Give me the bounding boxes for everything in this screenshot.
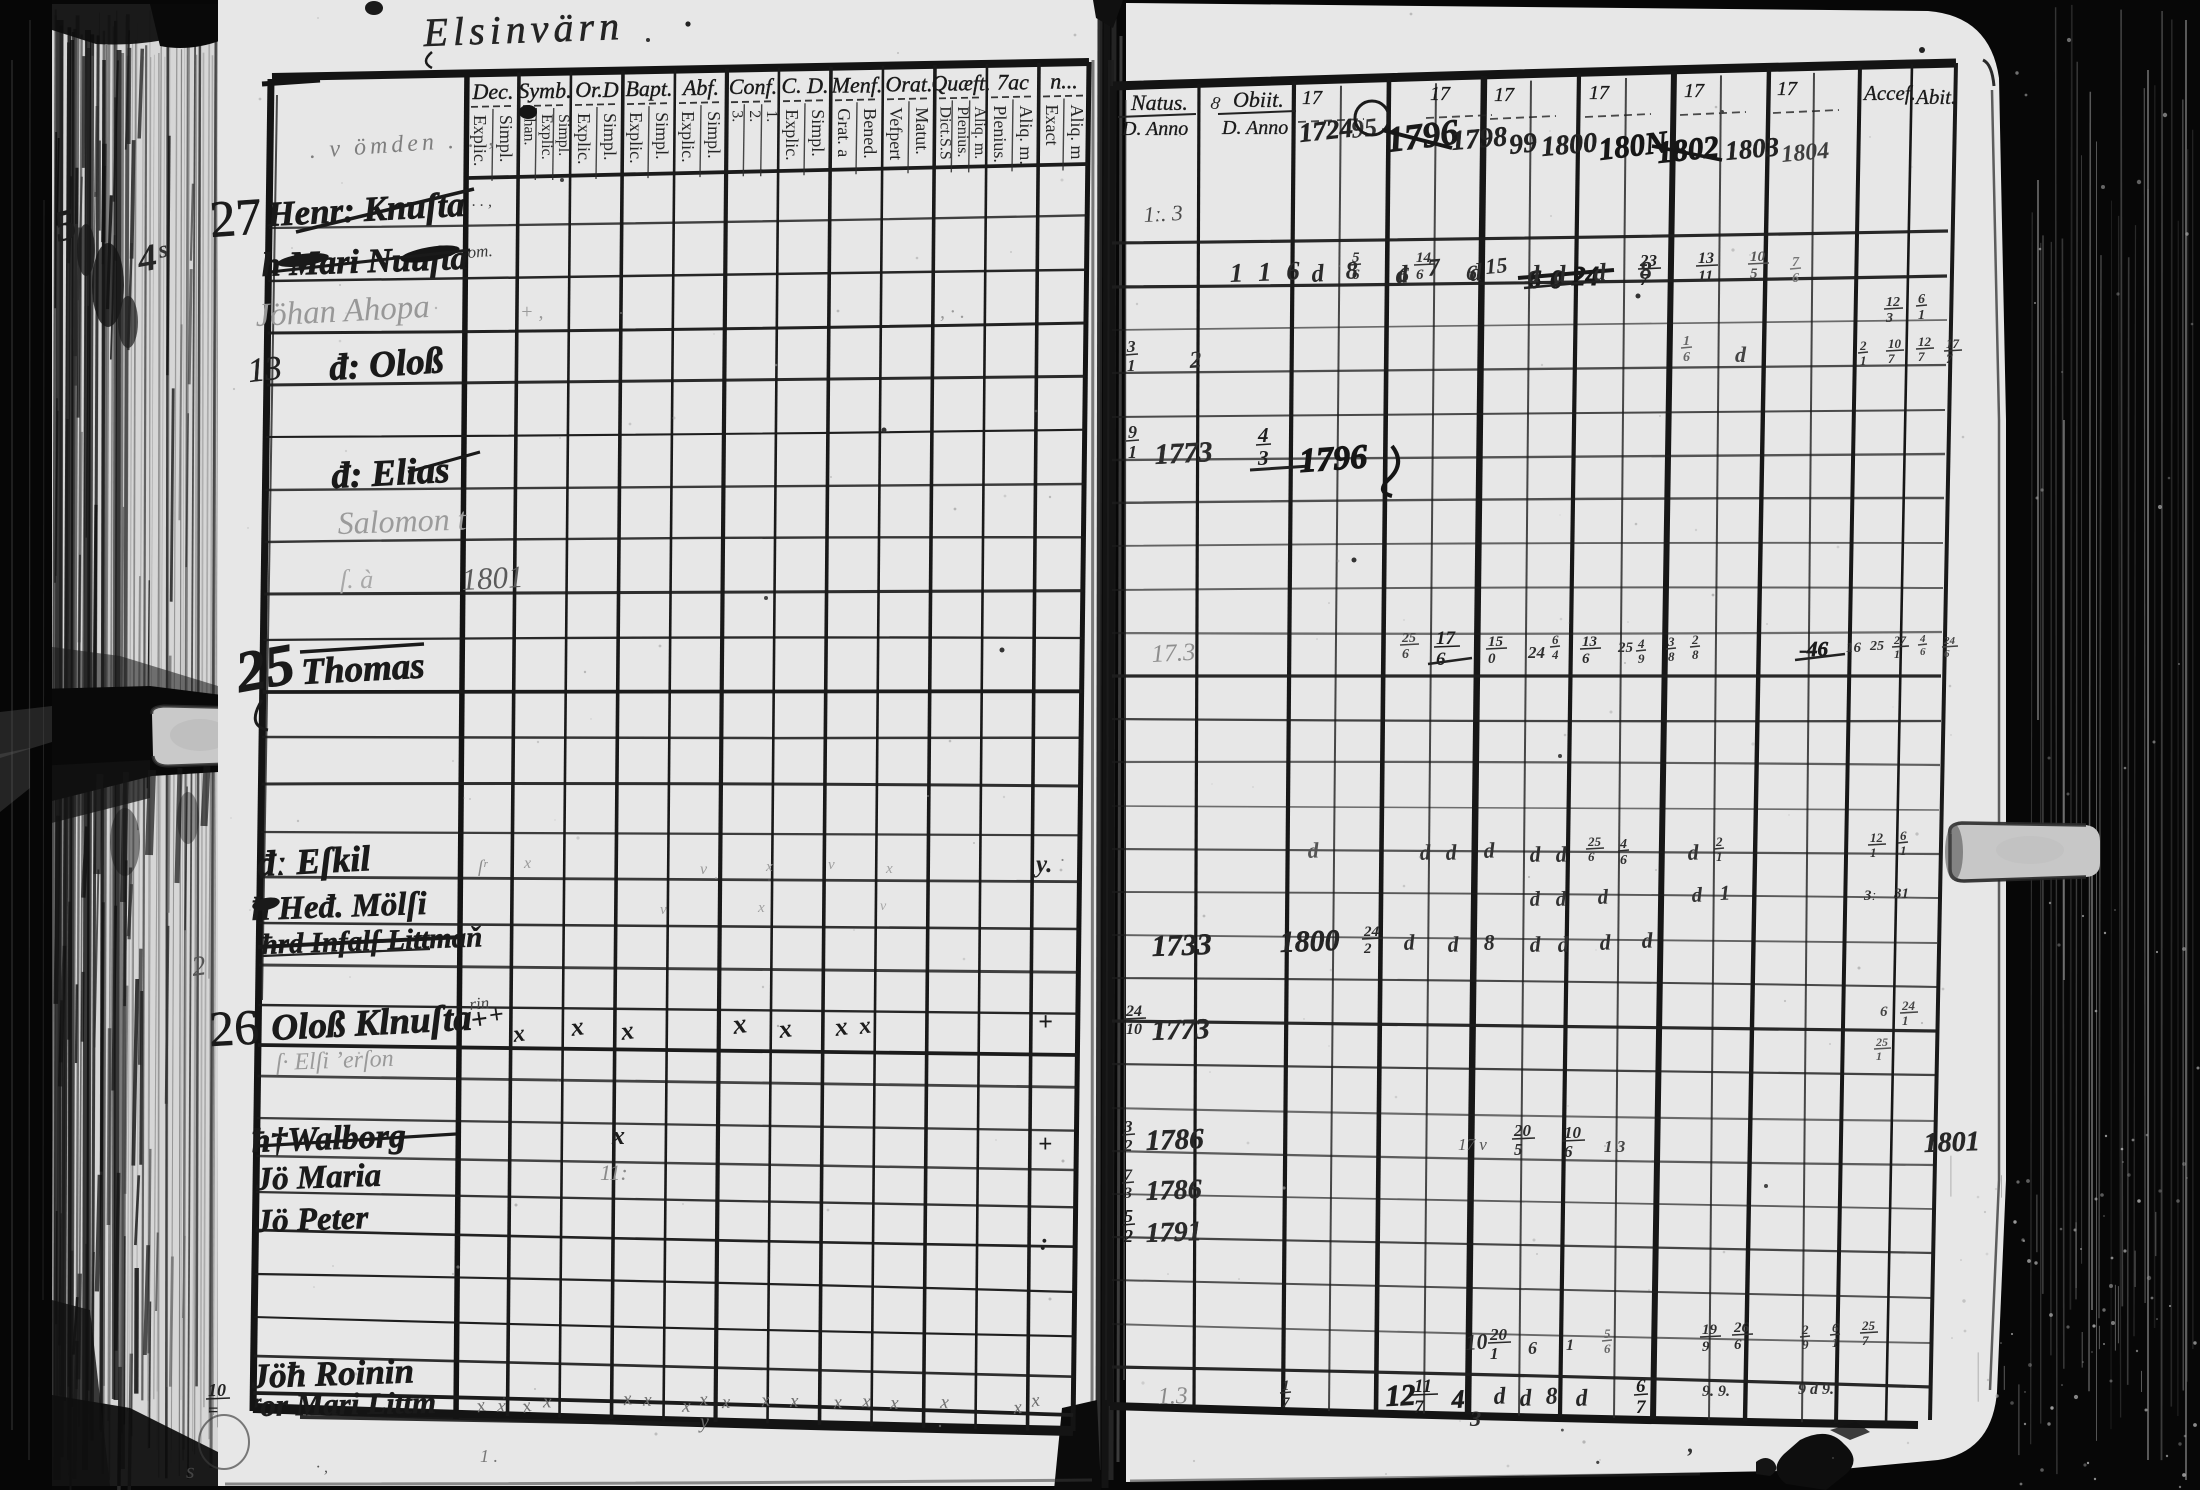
svg-text:v: v: [700, 861, 708, 878]
svg-text:7ac: 7ac: [997, 69, 1029, 94]
svg-text:2: 2: [1715, 834, 1723, 849]
svg-text:1: 1: [1127, 356, 1136, 375]
svg-text:Obiit.: Obiit.: [1233, 87, 1284, 112]
svg-text:8: 8: [1692, 647, 1699, 662]
svg-text:v: v: [880, 899, 887, 914]
svg-text:8: 8: [1545, 1383, 1558, 1410]
svg-text:2: 2: [1188, 347, 1203, 374]
svg-text:0: 0: [1488, 651, 1496, 667]
svg-text:25: 25: [1875, 1035, 1888, 1049]
svg-text:2.: 2.: [746, 110, 763, 122]
svg-text:31: 31: [1893, 886, 1909, 902]
svg-text:đ: Elias: đ: Elias: [330, 450, 450, 497]
svg-text:d: d: [1691, 882, 1703, 907]
svg-text:1.3: 1.3: [1157, 1383, 1188, 1410]
svg-text:8: 8: [1639, 257, 1654, 285]
svg-text:đ: Oloß: đ: Oloß: [328, 340, 445, 389]
svg-text:5: 5: [1514, 1140, 1523, 1159]
svg-text:4: 4: [1257, 423, 1269, 447]
svg-text:24: 24: [1901, 998, 1916, 1013]
svg-text:13: 13: [1698, 250, 1714, 267]
svg-text:Explic.: Explic.: [782, 109, 802, 161]
svg-text:7: 7: [1946, 351, 1953, 366]
svg-text:om.: om.: [467, 241, 494, 262]
svg-text:99: 99: [1507, 127, 1538, 161]
svg-text:7: 7: [1414, 1397, 1425, 1418]
svg-text:1: 1: [1719, 880, 1731, 905]
svg-text:1: 1: [1870, 845, 1877, 860]
svg-text:4: 4: [1551, 647, 1559, 662]
svg-text:d: d: [1469, 259, 1484, 287]
svg-text:6: 6: [1416, 267, 1424, 283]
svg-text:d: d: [1529, 886, 1541, 911]
svg-text:Orat.: Orat.: [885, 71, 932, 96]
svg-text:11: 11: [1698, 268, 1713, 285]
svg-text:6: 6: [1734, 1337, 1742, 1353]
svg-text:1 3: 1 3: [1604, 1137, 1626, 1156]
svg-text:Abf.: Abf.: [681, 75, 719, 100]
svg-text:25: 25: [1587, 834, 1602, 849]
svg-text:3: 3: [1123, 1117, 1133, 1136]
svg-text:1801: 1801: [461, 559, 525, 597]
svg-text:v: v: [828, 857, 835, 873]
svg-text:Simpl.: Simpl.: [652, 112, 672, 160]
svg-text:17: 17: [1302, 87, 1323, 109]
svg-text:10: 10: [208, 1380, 226, 1400]
svg-text:D. Anno: D. Anno: [1121, 118, 1188, 140]
svg-text:9: 9: [1128, 422, 1137, 442]
svg-text:1: 1: [1490, 1344, 1499, 1363]
svg-text:n...: n...: [1050, 69, 1078, 94]
svg-text:25: 25: [1861, 1318, 1876, 1333]
svg-text:Grat. a: Grat. a: [834, 108, 854, 157]
svg-text:1: 1: [1876, 1049, 1882, 1063]
svg-text:1: 1: [1832, 1335, 1839, 1350]
svg-text:2: 2: [1363, 941, 1372, 957]
svg-text:1791: 1791: [1145, 1216, 1202, 1249]
svg-text:Explic.: Explic.: [574, 113, 594, 165]
svg-text:1786: 1786: [1145, 1174, 1202, 1207]
svg-text:17.3: 17.3: [1151, 639, 1196, 668]
svg-text:+: +: [1038, 1007, 1053, 1036]
svg-text:1: 1: [1900, 843, 1907, 858]
svg-text:Plenius.: Plenius.: [954, 106, 971, 157]
svg-text:25: 25: [1617, 640, 1634, 656]
svg-text:Simpl.: Simpl.: [496, 115, 516, 163]
svg-text:26: 26: [208, 998, 261, 1057]
svg-text:x: x: [721, 1392, 732, 1413]
svg-text:x: x: [642, 1390, 653, 1411]
svg-text:25: 25: [230, 631, 299, 705]
svg-text:1773: 1773: [1151, 1013, 1210, 1047]
svg-text:6: 6: [1880, 1004, 1888, 1020]
svg-text:6: 6: [1604, 1341, 1611, 1356]
svg-text:13: 13: [246, 350, 284, 390]
svg-text:25: 25: [1869, 639, 1884, 654]
svg-text:1800: 1800: [1540, 127, 1598, 163]
svg-text:17: 17: [1494, 84, 1515, 106]
svg-text:d: d: [1395, 261, 1410, 289]
svg-text:x: x: [885, 861, 893, 877]
svg-text:9: 9: [1802, 1337, 1809, 1352]
svg-text:x: x: [523, 855, 531, 872]
svg-text:3: 3: [1667, 634, 1675, 649]
svg-text:ħ Heđ. Mölſi: ħ Heđ. Mölſi: [251, 886, 428, 928]
svg-text:1798: 1798: [1450, 121, 1508, 157]
svg-text:Exact: Exact: [1042, 105, 1062, 146]
svg-text:C. D.: C. D.: [781, 73, 828, 98]
svg-text:d: d: [1735, 342, 1747, 367]
svg-text:17: 17: [1430, 83, 1451, 105]
svg-text:8: 8: [1345, 257, 1360, 285]
svg-text:1801: 1801: [1923, 1126, 1980, 1159]
svg-text:d: d: [1311, 260, 1326, 288]
svg-text:6: 6: [1920, 646, 1926, 658]
svg-text:Quæft.: Quæft.: [931, 70, 990, 95]
svg-text:đː Eſkil: đː Eſkil: [256, 838, 371, 884]
svg-text:Bapt.: Bapt.: [625, 76, 672, 101]
svg-text:Thomas: Thomas: [300, 646, 425, 693]
svg-text:Aliq. m: Aliq. m: [1067, 105, 1087, 160]
svg-text:Jö Peter: Jö Peter: [254, 1200, 370, 1240]
svg-text:·: ·: [1060, 850, 1065, 870]
svg-text:Symb.: Symb.: [518, 78, 571, 103]
svg-text:d: d: [1597, 884, 1609, 909]
svg-text:3: 3: [1257, 446, 1269, 470]
svg-text:6: 6: [1792, 271, 1799, 286]
svg-text:2: 2: [1691, 632, 1699, 647]
svg-text:6: 6: [1402, 647, 1409, 662]
svg-text:1803: 1803: [1724, 131, 1780, 166]
svg-text:9 d 9.: 9 d 9.: [1798, 1381, 1834, 1398]
svg-text:d: d: [1555, 886, 1567, 911]
svg-text:17: 17: [1946, 336, 1960, 351]
svg-text:1: 1: [1902, 1013, 1909, 1028]
svg-text:8: 8: [1668, 649, 1675, 664]
svg-text:27: 27: [1893, 633, 1907, 647]
svg-text:1 .: 1 .: [480, 1446, 498, 1466]
svg-text:6: 6: [1944, 648, 1950, 660]
svg-text:y.: y.: [1033, 851, 1052, 878]
svg-text:s: s: [186, 1458, 195, 1483]
svg-text:2: 2: [1123, 1136, 1133, 1155]
svg-text:16: 16: [1846, 640, 1862, 656]
svg-text:Menf.: Menf.: [831, 72, 883, 97]
svg-text:2: 2: [1123, 1226, 1133, 1246]
svg-text:x: x: [789, 1391, 799, 1412]
svg-text:Explic.: Explic.: [678, 111, 698, 163]
svg-text:4: 4: [1637, 636, 1645, 651]
svg-text:y: y: [698, 1411, 709, 1433]
svg-text:d: d: [1527, 261, 1542, 289]
svg-text:Conf.: Conf.: [729, 74, 777, 99]
svg-text:3: 3: [1126, 337, 1136, 356]
svg-text:x: x: [611, 1121, 625, 1150]
svg-text:11:: 11:: [600, 1160, 628, 1185]
svg-text:7: 7: [1282, 1395, 1290, 1411]
svg-text:, · .: , · .: [940, 301, 965, 323]
svg-text:Explic.: Explic.: [538, 114, 555, 160]
svg-text:24: 24: [1125, 1003, 1142, 1020]
svg-text:7: 7: [1888, 351, 1895, 366]
svg-text:6: 6: [1552, 632, 1559, 647]
svg-text:6: 6: [1620, 853, 1627, 868]
svg-text:7: 7: [1636, 1397, 1647, 1418]
svg-text:x: x: [681, 1396, 691, 1417]
svg-text:6: 6: [1528, 1338, 1537, 1358]
svg-text:2: 2: [1801, 1322, 1809, 1337]
svg-text:9. 9.: 9. 9.: [1702, 1383, 1730, 1400]
svg-text:6: 6: [1900, 828, 1907, 843]
svg-text:Simpl.: Simpl.: [555, 114, 572, 156]
svg-text:Simpl.: Simpl.: [600, 113, 620, 161]
svg-text:17: 17: [1589, 82, 1610, 104]
svg-text:1: 1: [1128, 442, 1137, 462]
svg-text:1773: 1773: [1154, 436, 1214, 471]
svg-text:x: x: [496, 1396, 507, 1417]
svg-text:d: d: [1553, 261, 1568, 289]
svg-text:15: 15: [1484, 252, 1508, 279]
svg-text:v: v: [660, 902, 667, 918]
svg-text:4: 4: [1450, 1384, 1465, 1414]
svg-text:1: 1: [1566, 1337, 1574, 1354]
svg-text:4: 4: [1919, 633, 1926, 645]
svg-text:12: 12: [1385, 1378, 1417, 1413]
svg-text:17: 17: [1777, 78, 1798, 100]
svg-text:Plenius.: Plenius.: [990, 105, 1010, 163]
svg-text:Abit.: Abit.: [1914, 85, 1956, 109]
svg-text:Aliq. m.: Aliq. m.: [971, 106, 988, 159]
svg-text:Aliq. m.: Aliq. m.: [1016, 105, 1036, 165]
svg-text:10: 10: [1564, 1123, 1582, 1142]
svg-text:Bened.: Bened.: [860, 108, 880, 158]
svg-text:x: x: [757, 900, 765, 916]
svg-text:5: 5: [1750, 266, 1758, 282]
svg-text:6: 6: [1582, 651, 1590, 667]
svg-text:9: 9: [1702, 1339, 1710, 1355]
svg-text:d: d: [1593, 259, 1608, 287]
svg-text:Elsinvärn: Elsinvärn: [422, 3, 625, 55]
svg-text:1786: 1786: [1145, 1123, 1205, 1157]
svg-text:10: 10: [1888, 336, 1902, 351]
svg-text:17 v: 17 v: [1458, 1135, 1487, 1154]
svg-text:1796: 1796: [1298, 438, 1368, 480]
svg-text:20: 20: [1489, 1325, 1508, 1344]
svg-text:Accef.: Accef.: [1862, 81, 1916, 105]
svg-text:5: 5: [1604, 1326, 1611, 1341]
svg-text:+ ,: + ,: [520, 301, 544, 323]
svg-text:x: x: [889, 1393, 900, 1414]
svg-text:27: 27: [208, 188, 264, 248]
svg-text:ſ. à: ſ. à: [340, 565, 373, 594]
svg-text:24: 24: [1527, 643, 1545, 662]
svg-text:·: ·: [1560, 1420, 1565, 1440]
svg-text:x: x: [542, 1391, 552, 1412]
svg-text:Matut.: Matut.: [912, 107, 932, 155]
svg-text:1800: 1800: [1279, 924, 1340, 959]
svg-text:7: 7: [1862, 1333, 1869, 1348]
svg-text:2: 2: [1859, 338, 1867, 353]
svg-text:8: 8: [1483, 929, 1495, 955]
svg-text:12: 12: [1870, 830, 1884, 845]
svg-text:Dec.: Dec.: [472, 79, 514, 104]
svg-text:1.: 1.: [763, 110, 780, 122]
svg-text:1ː. 3: 1ː. 3: [1143, 200, 1183, 227]
svg-text:1724: 1724: [1297, 112, 1354, 147]
svg-text:6: 6: [1436, 649, 1446, 670]
svg-text:ſ· Elſi ʼerſon: ſ· Elſi ʼerſon: [275, 1046, 394, 1076]
svg-text:Natus.: Natus.: [1130, 90, 1188, 115]
svg-text:6: 6: [1564, 1142, 1573, 1161]
svg-text:ʳor Mari Littm: ʳor Mari Littm: [254, 1385, 437, 1423]
svg-text:10: 10: [1465, 1329, 1489, 1355]
svg-text:Explic.: Explic.: [626, 112, 646, 164]
svg-text::: :: [1040, 1230, 1048, 1256]
svg-text:5: 5: [1124, 1206, 1133, 1226]
svg-text:10: 10: [1126, 1021, 1142, 1038]
svg-text:. . ,: . . ,: [472, 193, 492, 210]
svg-text:Salomon t: Salomon t: [337, 500, 468, 541]
svg-text:Simpl.: Simpl.: [704, 111, 724, 159]
svg-text:З: З: [1469, 1406, 1481, 1431]
svg-text:Jö Maria: Jö Maria: [254, 1158, 382, 1198]
svg-text:Simpl.: Simpl.: [808, 109, 828, 157]
svg-text:3.: 3.: [729, 110, 746, 122]
svg-text:,: ,: [1687, 1432, 1694, 1458]
svg-text:6: 6: [1588, 849, 1595, 864]
svg-text:ſʳ: ſʳ: [478, 856, 488, 876]
svg-text:1733: 1733: [1151, 928, 1212, 963]
svg-text:20: 20: [1513, 1121, 1532, 1140]
svg-text:1: 1: [1716, 849, 1723, 864]
svg-text:6: 6: [1683, 350, 1690, 365]
svg-text:.: .: [1596, 1447, 1601, 1469]
svg-text:1 1 6: 1 1 6: [1229, 255, 1304, 288]
svg-text:3: 3: [1885, 311, 1893, 326]
svg-text:+: +: [1038, 1131, 1052, 1158]
svg-text:· ,: · ,: [316, 1459, 328, 1476]
svg-text:1: 1: [1860, 353, 1867, 368]
svg-text:x: x: [861, 1391, 871, 1412]
svg-text:7: 7: [1918, 349, 1925, 364]
svg-text:Or.D: Or.D: [575, 77, 619, 102]
svg-text:1804: 1804: [1780, 138, 1830, 168]
svg-text:3ː: 3ː: [1863, 888, 1877, 904]
svg-text:17: 17: [1684, 80, 1705, 102]
svg-text:9: 9: [1638, 651, 1645, 666]
svg-text:24: 24: [1943, 635, 1956, 647]
svg-text:1: 1: [1918, 308, 1925, 323]
svg-text:12: 12: [1918, 334, 1932, 349]
svg-text:D. Anno: D. Anno: [1221, 117, 1288, 139]
svg-text:6: 6: [1832, 1320, 1839, 1335]
svg-text:x: x: [765, 859, 773, 875]
svg-text:Vefpert: Vefpert: [886, 107, 906, 160]
svg-text:3: 3: [1123, 1185, 1132, 1202]
svg-text:1: 1: [1894, 647, 1900, 661]
